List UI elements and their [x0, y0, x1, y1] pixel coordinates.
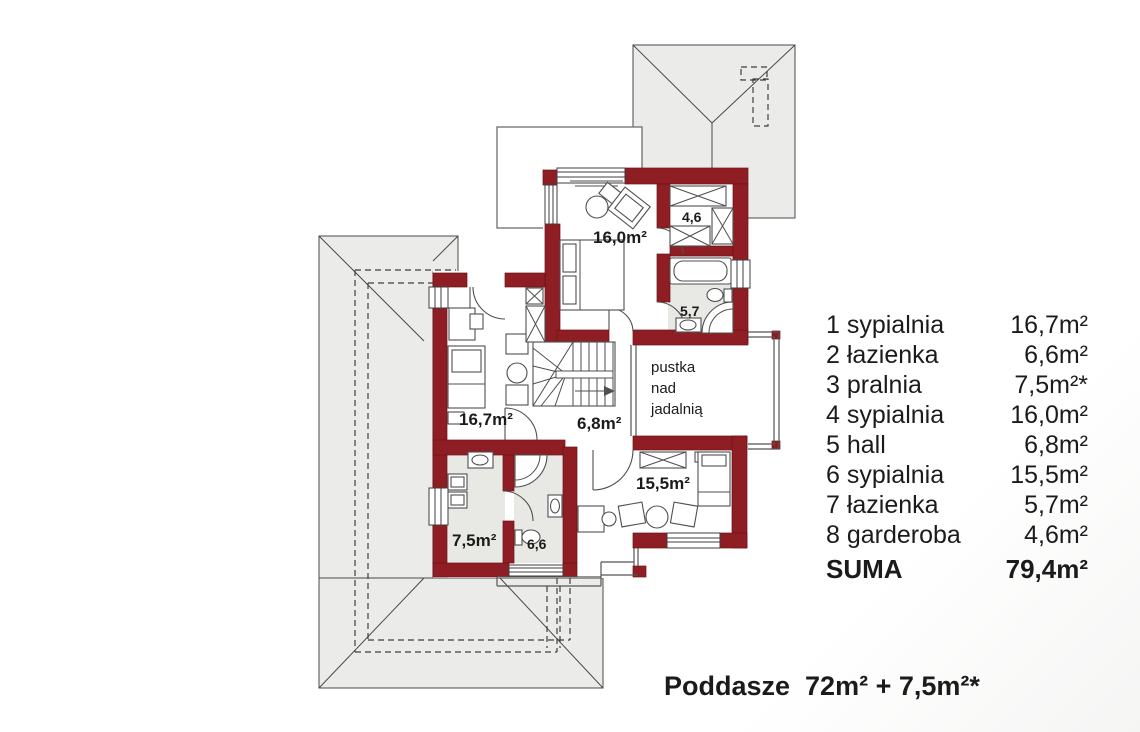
void-label-line3: jadalnią [650, 401, 703, 418]
window [509, 565, 563, 576]
room-label-garderoba: 4,6 [682, 209, 702, 225]
room-label-bedroom1: 16,7m² [459, 410, 513, 429]
chair-icon [506, 385, 528, 405]
legend-room-name: 5 hall [826, 430, 886, 460]
staircase [533, 342, 615, 406]
legend-row: 7 łazienka 5,7m² [826, 490, 1088, 520]
room-label-bedroom4: 16,0m² [593, 228, 647, 247]
legend-room-area: 4,6m² [1024, 520, 1088, 550]
window [429, 488, 448, 525]
legend-row: 8 garderoba 4,6m² [826, 520, 1088, 550]
legend-room-area: 7,5m²* [1014, 370, 1088, 400]
window [731, 260, 750, 288]
chair-icon [670, 502, 697, 527]
room-label-bathroom2: 6,6 [527, 536, 547, 552]
legend-room-name: 3 pralnia [826, 370, 922, 400]
chair-icon [506, 334, 528, 354]
area-legend: 1 sypialnia 16,7m² 2 łazienka 6,6m² 3 pr… [826, 310, 1088, 584]
table-icon [507, 363, 527, 383]
window [667, 533, 720, 548]
room-label-pralnia: 7,5m² [452, 531, 497, 550]
chair-icon [602, 512, 616, 526]
room-label-bedroom6: 15,5m² [636, 474, 690, 493]
legend-room-area: 16,0m² [1010, 400, 1088, 430]
chair-icon [586, 196, 608, 218]
legend-row: 1 sypialnia 16,7m² [826, 310, 1088, 340]
legend-total-row: SUMA 79,4m² [826, 554, 1088, 584]
legend-room-area: 16,7m² [1010, 310, 1088, 340]
legend-room-name: 8 garderoba [826, 520, 961, 550]
legend-room-area: 15,5m² [1010, 460, 1088, 490]
legend-room-name: 6 sypialnia [826, 460, 944, 490]
legend-room-area: 5,7m² [1024, 490, 1088, 520]
chair-icon [470, 314, 483, 329]
legend-room-name: 4 sypialnia [826, 400, 944, 430]
legend-total-value: 79,4m² [1006, 554, 1088, 584]
legend-room-name: 1 sypialnia [826, 310, 944, 340]
legend-row: 3 pralnia 7,5m²* [826, 370, 1088, 400]
legend-row: 2 łazienka 6,6m² [826, 340, 1088, 370]
legend-row: 4 sypialnia 16,0m² [826, 400, 1088, 430]
total-area-caption: Poddasze 72m² + 7,5m²* [664, 671, 980, 702]
window [429, 287, 448, 308]
stair-handrail [556, 371, 613, 378]
room-label-bathroom7: 5,7 [680, 303, 700, 319]
legend-room-name: 7 łazienka [826, 490, 939, 520]
floor-plan-page: 16,0m² 4,6 5,7 16,7m² 6,8m² 15,5m² 7,5m²… [0, 0, 1140, 732]
roof-bottom [319, 578, 603, 688]
toilet-icon [515, 530, 522, 545]
legend-row: 6 sypialnia 15,5m² [826, 460, 1088, 490]
toilet-icon [724, 289, 732, 302]
legend-room-name: 2 łazienka [826, 340, 939, 370]
furniture-hall-wardrobe [526, 288, 545, 342]
legend-room-area: 6,6m² [1024, 340, 1088, 370]
room-label-hall: 6,8m² [577, 414, 622, 433]
legend-row: 5 hall 6,8m² [826, 430, 1088, 460]
legend-total-label: SUMA [826, 554, 903, 584]
chair-icon [618, 502, 645, 527]
legend-room-area: 6,8m² [1024, 430, 1088, 460]
desk-icon [578, 506, 604, 532]
void-label-line1: pustka [651, 359, 696, 376]
void-label-line2: nad [651, 380, 676, 397]
table-icon [646, 506, 668, 528]
window [545, 185, 557, 224]
